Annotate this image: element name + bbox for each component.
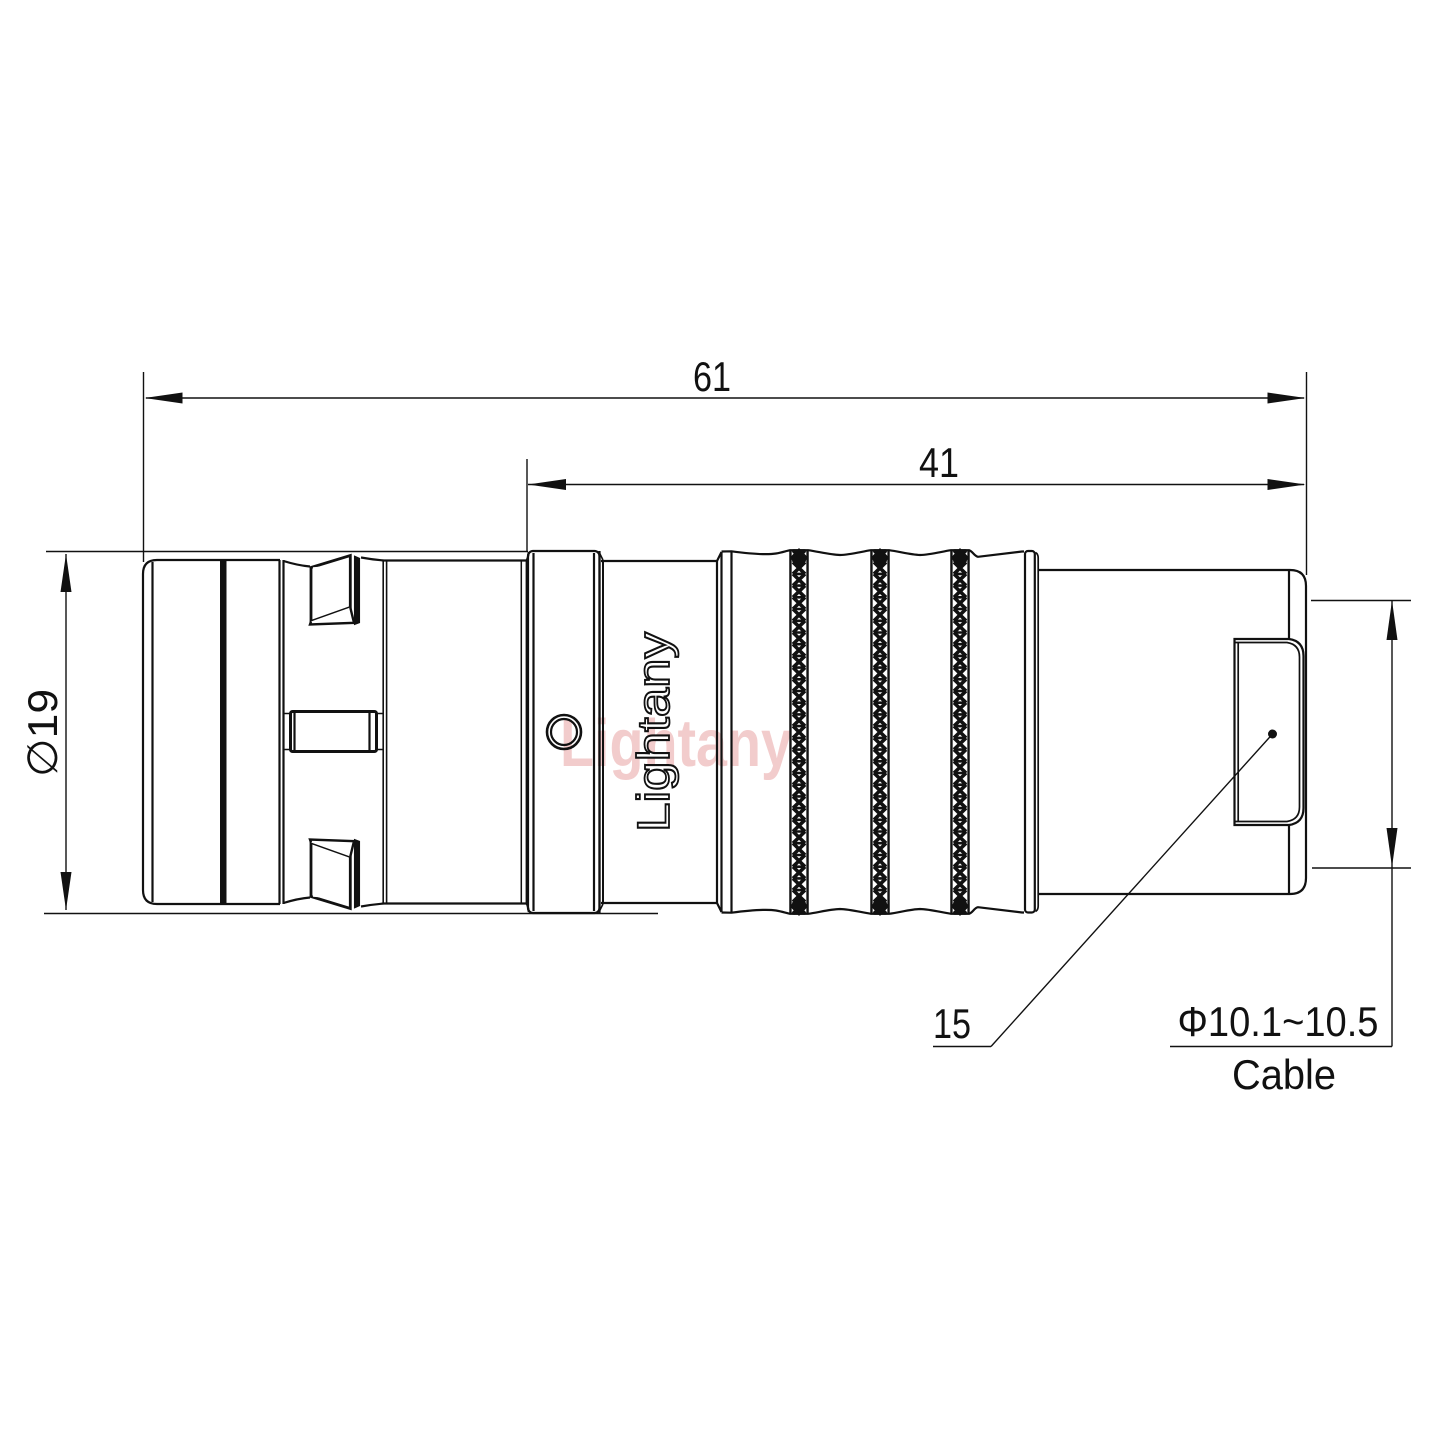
svg-text:41: 41: [919, 439, 959, 486]
svg-text:15: 15: [933, 1000, 971, 1047]
svg-text:Cable: Cable: [1232, 1051, 1336, 1098]
svg-text:Φ10.1~10.5: Φ10.1~10.5: [1178, 998, 1379, 1045]
svg-text:61: 61: [693, 353, 731, 400]
svg-text:Lightany: Lightany: [628, 631, 679, 832]
svg-text:∅19: ∅19: [19, 689, 66, 777]
